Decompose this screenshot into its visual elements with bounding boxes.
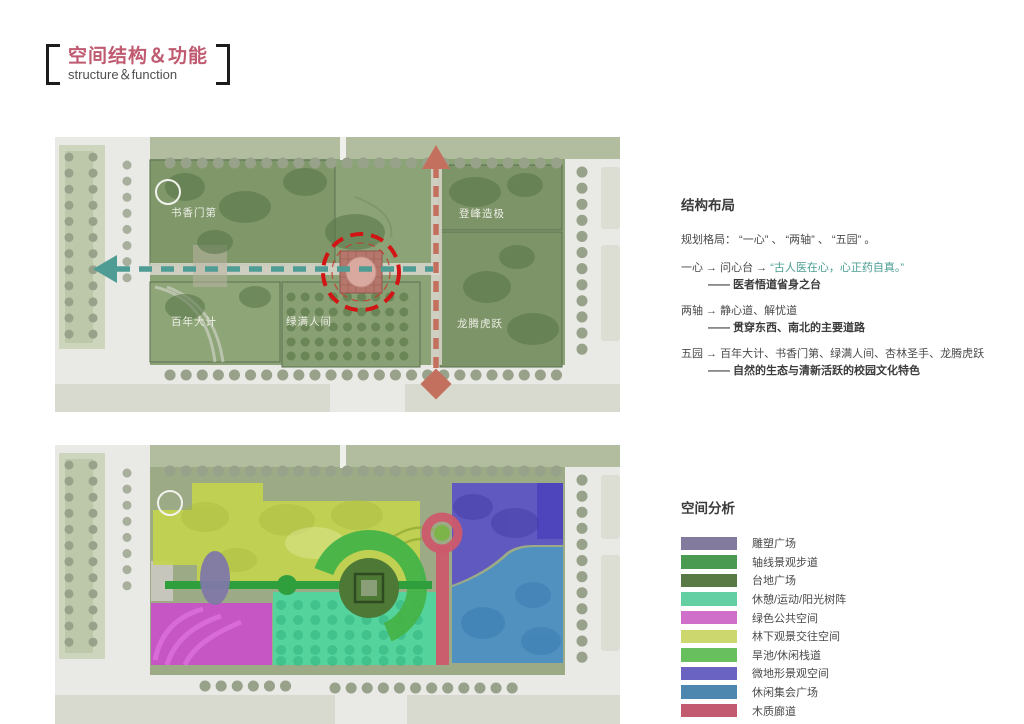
right-bracket-decoration <box>216 44 230 85</box>
structure-plan-map: 书香门第 登峰造极 百年大计 绿满人间 龙腾虎跃 <box>55 137 620 412</box>
legend-item: 休闲集会广场 <box>681 683 1016 702</box>
title-chinese: 空间结构＆功能 <box>68 46 208 67</box>
legend-label: 轴线景观步道 <box>752 554 818 570</box>
legend-item: 雕塑广场 <box>681 534 1016 553</box>
legend-swatch <box>681 685 737 699</box>
analysis-panel: 空间分析 雕塑广场 轴线景观步道 台地广场 休憩/运动/阳光树阵 绿色公共空间 … <box>681 497 1016 720</box>
structure-panel: 结构布局 规划格局： “一心” 、 “两轴” 、 “五园” 。 一心 → 问心台… <box>681 194 1016 390</box>
legend-label: 旱池/休闲栈道 <box>752 647 821 663</box>
legend-item: 林下观景交往空间 <box>681 627 1016 646</box>
structure-item-one-heart: 一心 → 问心台 → “古人医在心，心正药自真。” —— 医者悟道省身之台 <box>681 261 1016 292</box>
legend-swatch <box>681 704 737 718</box>
slide: 空间结构＆功能 structure＆function <box>0 0 1024 724</box>
legend-item: 休憩/运动/阳光树阵 <box>681 590 1016 609</box>
legend-label: 台地广场 <box>752 572 796 588</box>
label-bainian: 百年大计 <box>171 315 217 328</box>
label-dengfeng: 登峰造极 <box>459 207 505 220</box>
legend-item: 微地形景观空间 <box>681 664 1016 683</box>
legend: 雕塑广场 轴线景观步道 台地广场 休憩/运动/阳光树阵 绿色公共空间 林下观景交… <box>681 534 1016 720</box>
legend-swatch <box>681 630 737 644</box>
page-title: 空间结构＆功能 structure＆function <box>46 44 230 85</box>
two-axes-lead: 两轴 → 静心道、解忧道 <box>681 304 1016 318</box>
legend-label: 绿色公共空间 <box>752 610 818 626</box>
label-lvman: 绿满人间 <box>286 315 332 328</box>
structure-heading: 结构布局 <box>681 194 1016 214</box>
legend-swatch <box>681 537 737 551</box>
two-axes-sub: —— 贯穿东西、南北的主要道路 <box>708 321 1016 335</box>
zone-green-public <box>151 603 272 665</box>
label-longteng: 龙腾虎跃 <box>457 317 503 330</box>
legend-swatch <box>681 648 737 662</box>
planning-pattern-line: 规划格局： “一心” 、 “两轴” 、 “五园” 。 <box>681 231 1016 247</box>
legend-swatch <box>681 611 737 625</box>
legend-item: 台地广场 <box>681 571 1016 590</box>
legend-label: 林下观景交往空间 <box>752 628 840 644</box>
legend-label: 雕塑广场 <box>752 535 796 551</box>
legend-label: 休闲集会广场 <box>752 684 818 700</box>
title-english: structure＆function <box>68 67 208 82</box>
legend-label: 微地形景观空间 <box>752 665 829 681</box>
left-bracket-decoration <box>46 44 60 85</box>
legend-label: 休憩/运动/阳光树阵 <box>752 591 846 607</box>
legend-swatch <box>681 592 737 606</box>
one-heart-quote: “古人医在心，心正药自真。” <box>770 262 904 274</box>
label-shuxiang: 书香门第 <box>171 206 217 219</box>
analysis-heading: 空间分析 <box>681 497 1016 517</box>
five-gardens-sub: —— 自然的生态与清新活跃的校园文化特色 <box>708 364 1016 378</box>
legend-item: 旱池/休闲栈道 <box>681 646 1016 665</box>
legend-item: 轴线景观步道 <box>681 553 1016 572</box>
zone-terrace-plaza <box>339 558 399 618</box>
five-gardens-lead: 五园 → 百年大计、书香门第、绿满人间、杏林圣手、龙腾虎跃 <box>681 347 1016 361</box>
structure-item-two-axes: 两轴 → 静心道、解忧道 —— 贯穿东西、南北的主要道路 <box>681 304 1016 335</box>
legend-swatch <box>681 574 737 588</box>
structure-item-five-gardens: 五园 → 百年大计、书香门第、绿满人间、杏林圣手、龙腾虎跃 —— 自然的生态与清… <box>681 347 1016 378</box>
legend-label: 木质廊道 <box>752 703 796 719</box>
legend-swatch <box>681 667 737 681</box>
legend-item: 绿色公共空间 <box>681 608 1016 627</box>
analysis-plan-map <box>55 445 620 724</box>
one-heart-lead: 一心 → 问心台 → <box>681 262 770 274</box>
zone-sculpture-plaza <box>200 551 230 605</box>
one-heart-sub: —— 医者悟道省身之台 <box>708 278 1016 292</box>
legend-swatch <box>681 555 737 569</box>
legend-item: 木质廊道 <box>681 701 1016 720</box>
